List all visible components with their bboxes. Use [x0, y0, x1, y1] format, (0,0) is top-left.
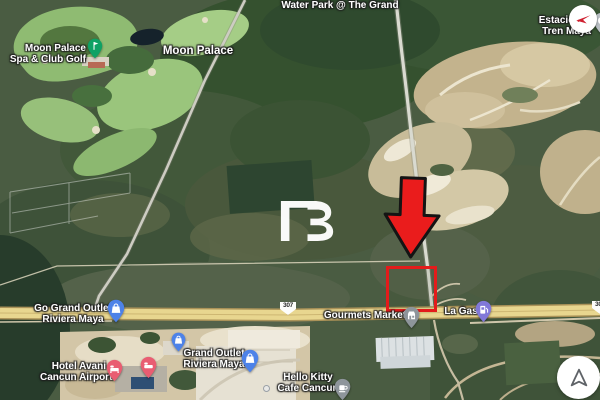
tren-maya-station-icon[interactable] — [569, 5, 597, 33]
navigation-arrow-icon — [568, 367, 590, 389]
satellite-map-canvas[interactable]: Water Park @ The Grand Moon Palace Spa &… — [0, 0, 600, 400]
go-grand-outlet-pin[interactable] — [107, 299, 125, 323]
small-poi-dot-icon[interactable] — [263, 385, 270, 392]
label-la-gas[interactable]: La Gas — [444, 306, 477, 317]
hotel-pin-secondary[interactable] — [140, 356, 157, 379]
hello-kitty-cafe-pin[interactable] — [334, 378, 351, 400]
gourmets-market-pin[interactable] — [403, 306, 420, 329]
hotel-avani-pin[interactable] — [106, 359, 123, 382]
watermark-b-logo — [279, 199, 336, 243]
label-hotel-avani[interactable]: Hotel Avani Cancun Airport — [40, 361, 106, 383]
label-moon-palace[interactable]: Moon Palace — [163, 45, 233, 57]
storefront-icon — [408, 311, 415, 319]
label-gourmets-market[interactable]: Gourmets Market — [324, 310, 406, 321]
label-grand-outlet[interactable]: Grand Outlet Riviera Maya — [183, 348, 244, 370]
label-moon-palace-golf[interactable]: Moon Palace Spa & Club Golf — [4, 43, 86, 65]
locate-me-button[interactable] — [557, 356, 600, 399]
label-hello-kitty-cafe[interactable]: Hello Kitty Cafe Cancun — [277, 372, 338, 394]
tren-maya-logo-icon — [574, 10, 592, 28]
golf-flag-pin[interactable] — [87, 38, 103, 59]
label-go-grand-outlet[interactable]: Go Grand Outlet Riviera Maya — [34, 303, 112, 325]
shopping-pin-small[interactable] — [171, 332, 186, 352]
warehouses — [376, 336, 435, 369]
red-pointer-arrow — [376, 173, 447, 263]
la-gas-pin[interactable] — [475, 300, 492, 323]
grand-outlet-pin[interactable] — [241, 349, 259, 373]
label-water-park[interactable]: Water Park @ The Grand — [281, 0, 398, 11]
